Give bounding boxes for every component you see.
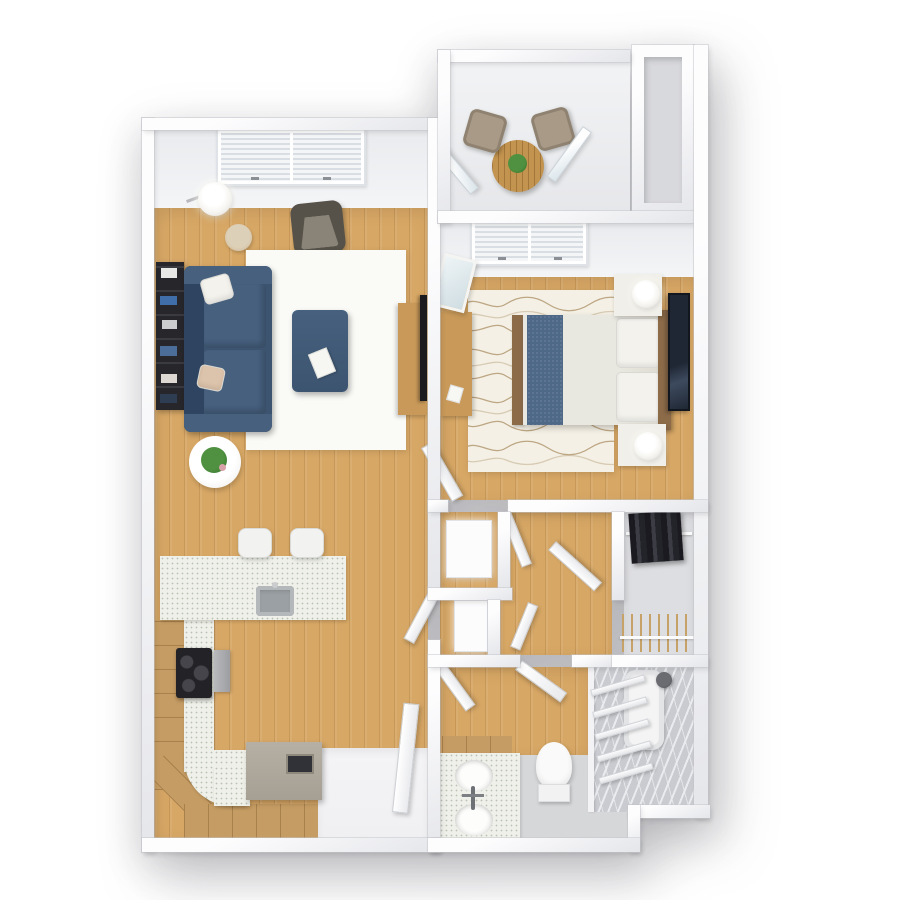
kitchen-sink <box>256 586 294 616</box>
shoe-rack <box>622 614 694 652</box>
book <box>160 296 177 305</box>
wall-closet-left <box>612 512 624 600</box>
wall-laundry-niche2 <box>488 600 500 655</box>
apartment-unit <box>0 0 900 900</box>
wall-bath-top-a <box>428 655 520 667</box>
utility-chase <box>632 45 694 215</box>
bar-stool <box>290 528 324 558</box>
toilet-bowl <box>536 742 572 788</box>
hanging-clothes <box>628 510 683 564</box>
wall-laundry-divider <box>428 588 512 600</box>
shoe-rack-rail <box>620 636 694 639</box>
throw-pillow-tan <box>196 364 226 393</box>
wall-balcony-bedroom <box>438 211 694 223</box>
table-lamp <box>634 432 662 460</box>
flower <box>219 464 226 471</box>
wall-art <box>668 293 690 411</box>
bookshelf <box>156 262 184 410</box>
wall-bedroom-hall-b <box>508 500 708 512</box>
coffee-table <box>189 436 241 488</box>
window-pane <box>531 221 584 261</box>
armchair <box>289 199 346 256</box>
kitchen-faucet <box>272 582 278 588</box>
toilet-tank <box>538 784 570 802</box>
wall-divider-lower <box>428 640 440 852</box>
window-pane <box>221 133 290 181</box>
window-pane <box>293 133 362 181</box>
bar-stool <box>238 528 272 558</box>
bedroom-window <box>470 216 588 266</box>
armchair-seat <box>298 214 339 250</box>
window-pane <box>475 221 528 261</box>
book <box>161 268 177 278</box>
sofa-arm <box>184 414 272 432</box>
floor-lamp <box>198 182 232 216</box>
cooktop <box>176 648 212 698</box>
wall-bottom-kitchen <box>142 838 440 852</box>
living-room-window <box>216 128 366 186</box>
potted-plant <box>508 154 527 173</box>
table-lamp <box>632 280 660 308</box>
wall-oven <box>214 650 230 692</box>
book <box>162 320 177 329</box>
kitchen-counter-bottom <box>214 766 250 806</box>
kitchen-cabinets-bottom <box>184 804 318 838</box>
wall-bottom-bath <box>428 838 640 852</box>
book <box>160 394 177 403</box>
wall-closet-bottom <box>612 655 708 667</box>
utility-chase-cavity <box>644 57 682 203</box>
book <box>160 346 177 356</box>
wall-top-living <box>142 118 440 130</box>
island-tray <box>286 754 314 774</box>
vanity-faucet-handles <box>462 794 484 797</box>
bed-runner-blue <box>527 315 563 425</box>
floor-plan-canvas <box>0 0 900 900</box>
shower-head <box>656 672 672 688</box>
book <box>161 374 177 383</box>
bed-pillow <box>616 372 660 422</box>
wall-balcony-top <box>438 50 630 62</box>
wall-bath-step-h <box>628 805 710 818</box>
bed-pillow <box>616 318 660 368</box>
wall-balcony-left <box>438 50 450 223</box>
wall-right-exterior <box>694 45 708 818</box>
glass-side-table <box>225 224 252 251</box>
dryer <box>454 600 488 652</box>
wall-bath-top-b <box>572 655 612 667</box>
washer <box>446 520 492 578</box>
tv <box>420 295 427 401</box>
wall-left-exterior <box>142 118 154 852</box>
wall-laundry-niche1 <box>498 512 510 588</box>
vanity-faucet <box>471 786 475 810</box>
kitchen-peninsula <box>160 556 346 620</box>
kitchen-island-bench <box>246 742 322 800</box>
wall-bedroom-hall-a <box>428 500 448 512</box>
